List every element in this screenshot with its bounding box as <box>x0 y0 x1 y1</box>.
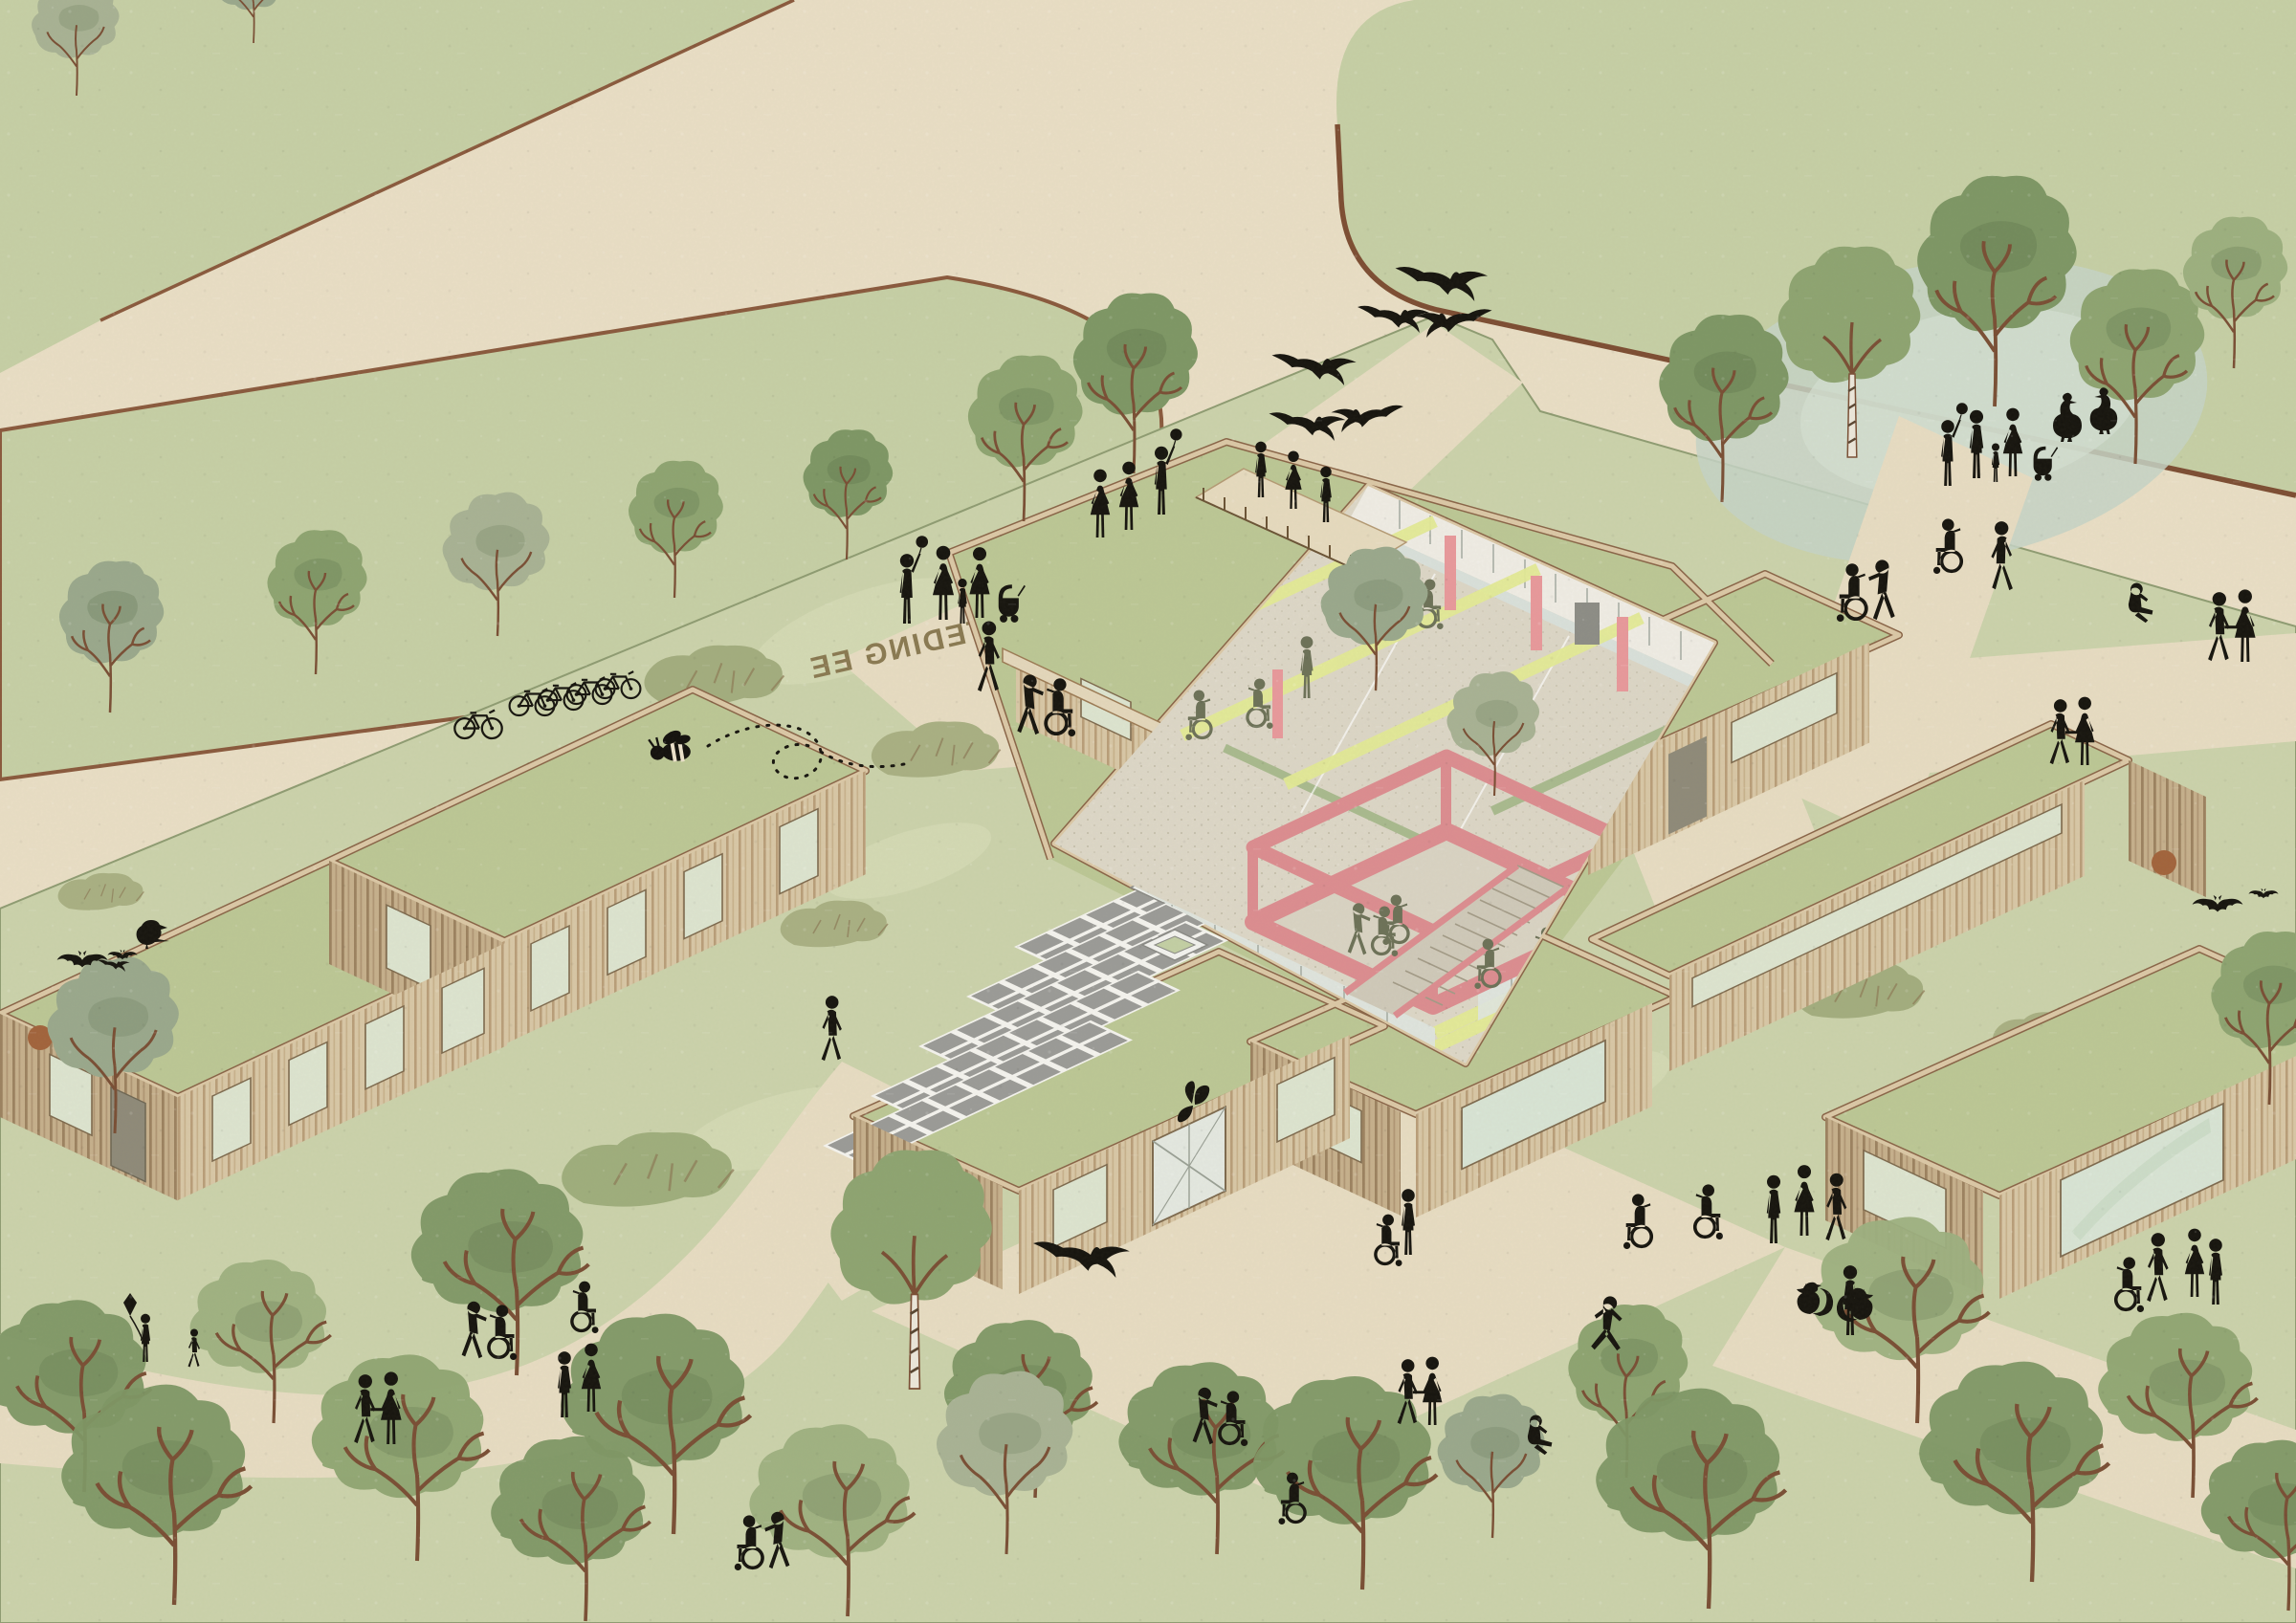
site-illustration: DAGBESTEDING EE <box>0 0 2296 1623</box>
paper-grain <box>0 0 2296 1623</box>
